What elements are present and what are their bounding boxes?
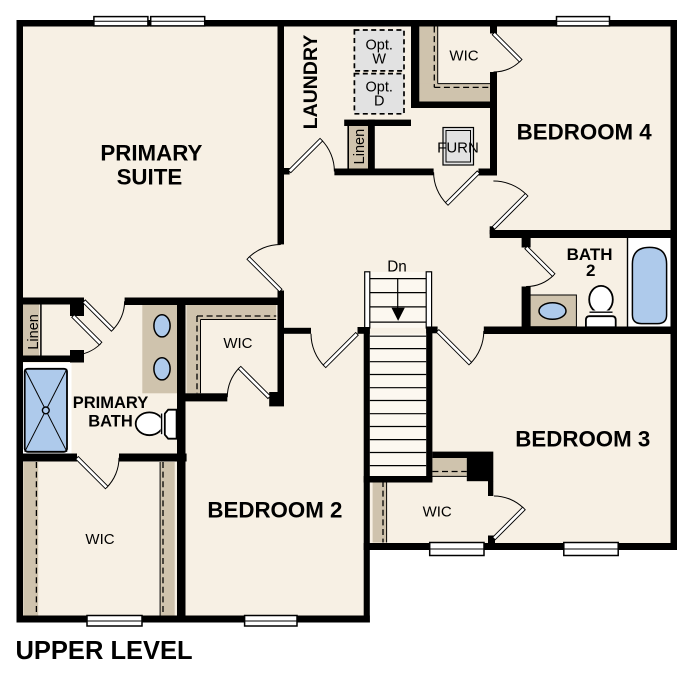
- svg-text:PRIMARY: PRIMARY: [73, 394, 148, 412]
- svg-text:BATH: BATH: [88, 412, 133, 430]
- svg-text:Linen: Linen: [26, 314, 42, 349]
- svg-text:D: D: [374, 94, 384, 110]
- svg-text:PRIMARY: PRIMARY: [100, 141, 202, 166]
- svg-text:BEDROOM 2: BEDROOM 2: [207, 498, 342, 523]
- svg-text:BEDROOM 3: BEDROOM 3: [515, 427, 650, 452]
- svg-text:Dn: Dn: [387, 259, 407, 276]
- svg-text:UPPER LEVEL: UPPER LEVEL: [16, 637, 193, 665]
- svg-text:LAUNDRY: LAUNDRY: [300, 35, 322, 130]
- svg-text:WIC: WIC: [223, 335, 252, 352]
- svg-text:Linen: Linen: [352, 129, 368, 164]
- svg-text:WIC: WIC: [423, 504, 452, 521]
- svg-text:WIC: WIC: [449, 48, 478, 65]
- svg-text:WIC: WIC: [85, 531, 114, 548]
- svg-text:FURN: FURN: [437, 140, 479, 157]
- svg-text:W: W: [372, 52, 386, 68]
- svg-text:2: 2: [586, 261, 595, 280]
- svg-text:BEDROOM 4: BEDROOM 4: [517, 120, 653, 145]
- svg-text:SUITE: SUITE: [117, 165, 183, 190]
